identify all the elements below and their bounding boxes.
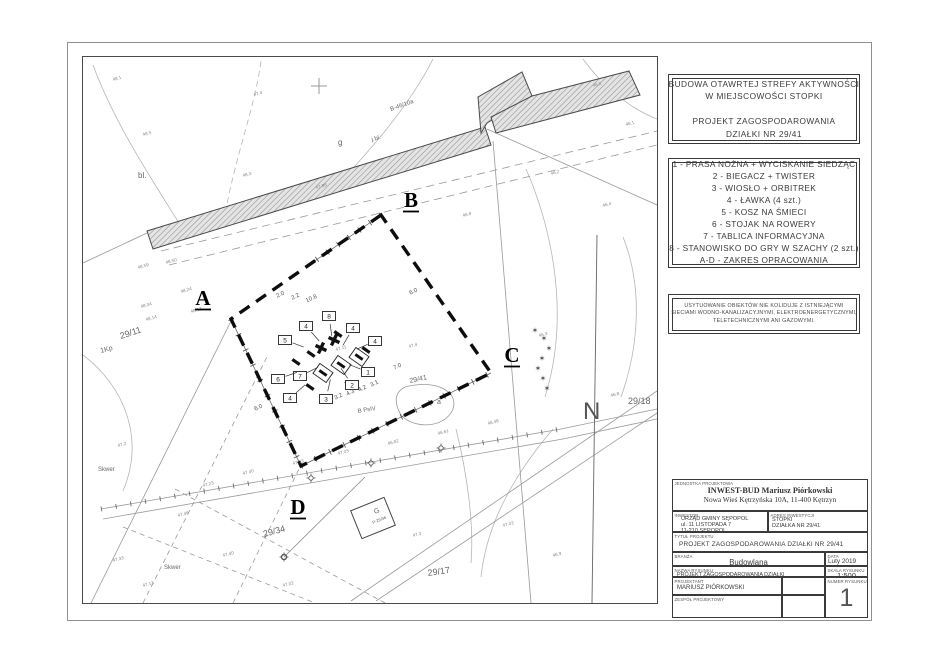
title-line-2: [763, 103, 766, 116]
map-label: Skwer: [98, 467, 115, 473]
utilities-note-lines: USYTUOWANIE OBIEKTÓW NIE KOLIDUJE Z ISTN…: [672, 298, 857, 331]
spot-elevation: 47.4: [253, 90, 263, 97]
title-line-1: W MIEJSCOWOŚCI STOPKI: [705, 90, 822, 103]
legend-item-7: 8 - STANOWISKO DO GRY W SZACHY (2 szt.): [669, 243, 859, 255]
dimension-label: 6.0: [409, 287, 420, 296]
equipment-number: 8: [327, 313, 331, 320]
spot-elevation: 48.1: [112, 75, 122, 82]
title-line-3: PROJEKT ZAGOSPODAROWANIA: [692, 115, 835, 128]
spot-elevation: 48.34: [140, 301, 153, 309]
lamp-icon: [369, 461, 373, 465]
spot-elevation: 46.8: [462, 211, 472, 218]
equipment-number: 7: [298, 373, 302, 380]
title-block-team: ZESPÓŁ PROJEKTOWY: [672, 595, 782, 618]
title-line-0: BUDOWA OTAWRTEJ STREFY AKTYWNOŚCI: [669, 78, 860, 91]
tree-icon: ✶: [539, 354, 546, 363]
legend-item-5: 6 - STOJAK NA ROWERY: [712, 219, 816, 231]
map-label: bl.: [138, 171, 146, 180]
spot-elevation: 47.02: [502, 520, 515, 528]
spot-elevation: 47.2: [117, 441, 127, 448]
spot-elevation: 47.46: [177, 510, 190, 518]
title-block-project-title: TYTUŁ PROJEKTU PROJEKT ZAGOSPODAROWANIA …: [672, 532, 868, 552]
equipment-leader: [328, 379, 331, 391]
title-line-4: DZIAŁKI NR 29/41: [726, 128, 802, 141]
project-title-text: PROJEKT ZAGOSPODAROWANIA DZIAŁKI NR 29/4…: [679, 541, 867, 548]
legend-item-8: A-D - ZAKRES OPRACOWANIA: [700, 255, 828, 267]
equipment-number: 6: [276, 376, 280, 383]
equipment-number: 5: [283, 337, 287, 344]
building-band: [147, 71, 640, 249]
section-letter-D: D: [290, 495, 305, 519]
map-label: B PsIV: [357, 406, 376, 415]
title-block-scale: SKALA RYSUNKU 1:500: [825, 566, 868, 577]
legend-item-4: 5 - KOSZ NA ŚMIECI: [721, 207, 806, 219]
spot-elevation: 48.5: [142, 130, 152, 137]
spot-elevation: 47.02: [282, 580, 295, 588]
design-unit-name: INWEST-BUD Mariusz Piórkowski: [673, 486, 867, 495]
dimension-label: 3.2: [334, 392, 345, 401]
tree-icon: ✶: [546, 344, 553, 353]
dimension-label: 2.2: [291, 292, 302, 301]
section-letter-A: A: [195, 286, 211, 310]
drawing-number-value: 1: [826, 584, 867, 613]
title-block-drawing-number: NUMER RYSUNKU 1: [825, 577, 868, 618]
dimension-label: 7.0: [393, 362, 404, 371]
dimension-label: 2.0: [276, 290, 287, 299]
note-line-1: SIECIAMI WODNO-KANALIZACYJNYMI, ELEKTROE…: [671, 310, 857, 318]
drawing-number-label: NUMER RYSUNKU: [828, 579, 867, 584]
spot-elevation: 46.8: [610, 391, 620, 398]
legend-item-3: 4 - ŁAWKA (4 szt.): [727, 195, 801, 207]
map-label: 29/11: [119, 325, 143, 341]
equipment-leader: [311, 332, 319, 341]
title-block-date: DATA Luty 2019: [825, 552, 868, 566]
legend-item-2: 3 - WIOSŁO + ORBITREK: [712, 183, 816, 195]
section-letters: ABCD: [195, 188, 520, 519]
spot-elevation: 47.40: [222, 550, 235, 558]
map-label: 29/34: [262, 523, 286, 538]
project-title-lines: BUDOWA OTAWRTEJ STREFY AKTYWNOŚCIW MIEJS…: [672, 78, 857, 141]
tree-icon: ✶: [535, 364, 542, 373]
title-block: JEDNOSTKA PROJEKTOWA INWEST-BUD Mariusz …: [672, 479, 868, 618]
north-arrow: N: [583, 235, 600, 603]
equipment-number: 3: [324, 396, 328, 403]
equipment-number: 1: [366, 369, 370, 376]
map-label: a: [437, 399, 441, 406]
address-label: ADRES INWESTYCJI: [771, 513, 815, 518]
branch-value: Budowlana: [673, 558, 824, 567]
spot-elevation: 46.61: [437, 428, 450, 436]
designer-label: PROJEKTANT: [675, 579, 704, 584]
equipment-number: 4: [288, 395, 292, 402]
map-label: 29/17: [427, 565, 451, 578]
dimension-label: 4.2: [358, 384, 369, 393]
section-letter-C: C: [504, 343, 519, 367]
spot-elevation: 47.3: [412, 531, 422, 538]
title-block-drawing-name: NAZWA RYSUNKU PROJEKT ZAGOSPODAROWANIA D…: [672, 566, 825, 577]
section-letter-B: B: [404, 188, 418, 212]
spot-elevation: 46.48: [487, 418, 500, 426]
utilities-note-box: USYTUOWANIE OBIEKTÓW NIE KOLIDUJE Z ISTN…: [668, 294, 860, 334]
equipment-leader: [307, 367, 318, 372]
branch-label: BRANŻA: [675, 554, 693, 559]
spot-elevation: 48.3: [242, 171, 252, 178]
dimension-label: 10.8: [305, 294, 319, 305]
investor-lines: URZĄD GMINY SĘPOPOLul. 11 LISTOPADA 711-…: [673, 517, 767, 532]
legend-items: 1 - PRASA NOŻNA + WYCISKANIE SIEDZĄC2 - …: [672, 162, 857, 265]
legend-item-0: 1 - PRASA NOŻNA + WYCISKANIE SIEDZĄC: [673, 159, 856, 171]
design-unit-label: JEDNOSTKA PROJEKTOWA: [675, 481, 734, 486]
scale-label: SKALA RYSUNKU: [828, 568, 865, 573]
dimension-label: 6.0: [254, 403, 265, 412]
drawing-name-label: NAZWA RYSUNKU: [675, 568, 714, 573]
legend-box: 1 - PRASA NOŻNA + WYCISKANIE SIEDZĄC2 - …: [668, 158, 860, 268]
spot-elevation: 46.4: [602, 201, 612, 208]
map-label: j.bl.: [370, 135, 382, 143]
tree-icon: ✶: [540, 374, 547, 383]
spot-elevation: 47.40: [242, 468, 255, 476]
investor-label: INWESTOR: [675, 513, 699, 518]
spot-elevation: 48.50: [165, 257, 178, 265]
lamp-icon: [309, 476, 313, 480]
title-block-investor: INWESTOR URZĄD GMINY SĘPOPOLul. 11 LISTO…: [672, 511, 768, 532]
spot-elevation: 47.4: [408, 342, 418, 349]
spot-elevation: 48.24: [180, 286, 193, 294]
equipment-leader: [292, 343, 303, 347]
note-line-0: USYTUOWANIE OBIEKTÓW NIE KOLIDUJE Z ISTN…: [684, 303, 843, 311]
map-label: g: [338, 138, 342, 147]
north-label: N: [583, 398, 600, 425]
title-block-signature-1: [782, 577, 825, 595]
equipment-leader: [349, 365, 360, 369]
outbuilding: [351, 497, 396, 538]
spot-elevation: 46.1: [625, 120, 635, 127]
legend-item-1: 2 - BIEGACZ + TWISTER: [713, 171, 815, 183]
map-label: Skwer: [164, 565, 181, 571]
equipment-number: 4: [351, 325, 355, 332]
grid-cross-icon: [311, 78, 327, 94]
title-block-signature-2: [782, 595, 825, 618]
title-block-address: ADRES INWESTYCJI STOPKIDZIAŁKA NR 29/41: [768, 511, 868, 532]
project-title-label: TYTUŁ PROJEKTU: [675, 534, 714, 539]
map-label: 29/41: [409, 374, 428, 385]
drawing-sheet: N ✶✶✶✶✶✶✶: [0, 0, 940, 664]
spot-elevation: 46.2: [550, 169, 560, 176]
address-lines: STOPKIDZIAŁKA NR 29/41: [769, 517, 867, 530]
project-title-box: BUDOWA OTAWRTEJ STREFY AKTYWNOŚCIW MIEJS…: [668, 74, 860, 144]
spot-elevation: 46.82: [387, 438, 400, 446]
map-label: 29/18: [628, 396, 651, 406]
date-value: Luty 2019: [828, 558, 867, 565]
equipment-leader: [296, 385, 305, 393]
equipment-number: 4: [373, 338, 377, 345]
address-line-1: DZIAŁKA NR 29/41: [772, 523, 867, 529]
equipment-leader: [330, 324, 332, 336]
designer-name: MARIUSZ PIÓRKOWSKI: [677, 585, 781, 591]
spot-elevation: 47.11: [335, 344, 347, 352]
spot-elevation: 48.14: [145, 314, 158, 322]
date-label: DATA: [828, 554, 839, 559]
work-extent-boundary: [231, 215, 491, 466]
spot-elevation: 47.13: [142, 580, 155, 588]
design-unit-address: Nowa Wieś Kętrzyńska 10A, 11-400 Kętrzyn: [673, 495, 867, 504]
map-label: 1Kp: [100, 345, 114, 355]
title-block-branch: BRANŻA Budowlana: [672, 552, 825, 566]
dimension-label: 3.1: [370, 379, 381, 388]
legend-item-6: 7 - TABLICA INFORMACYJNA: [703, 231, 825, 243]
team-label: ZESPÓŁ PROJEKTOWY: [675, 597, 725, 602]
site-plan-map-frame: N ✶✶✶✶✶✶✶: [82, 56, 658, 604]
equipment-number: 4: [304, 323, 308, 330]
spot-elevation: 48.59: [137, 262, 150, 270]
tree-icon: ✶: [544, 384, 551, 393]
title-block-designer: PROJEKTANT MARIUSZ PIÓRKOWSKI: [672, 577, 782, 595]
spot-elevation: 46.9: [552, 551, 562, 558]
map-label: B-46/10a: [390, 99, 416, 113]
site-plan-map: N ✶✶✶✶✶✶✶: [83, 57, 657, 603]
spot-elevation: 47.23: [202, 480, 215, 488]
title-block-design-unit: JEDNOSTKA PROJEKTOWA INWEST-BUD Mariusz …: [672, 479, 868, 511]
note-line-2: TELETECHNICZNYMI ANI GAZOWYMI.: [713, 318, 815, 326]
